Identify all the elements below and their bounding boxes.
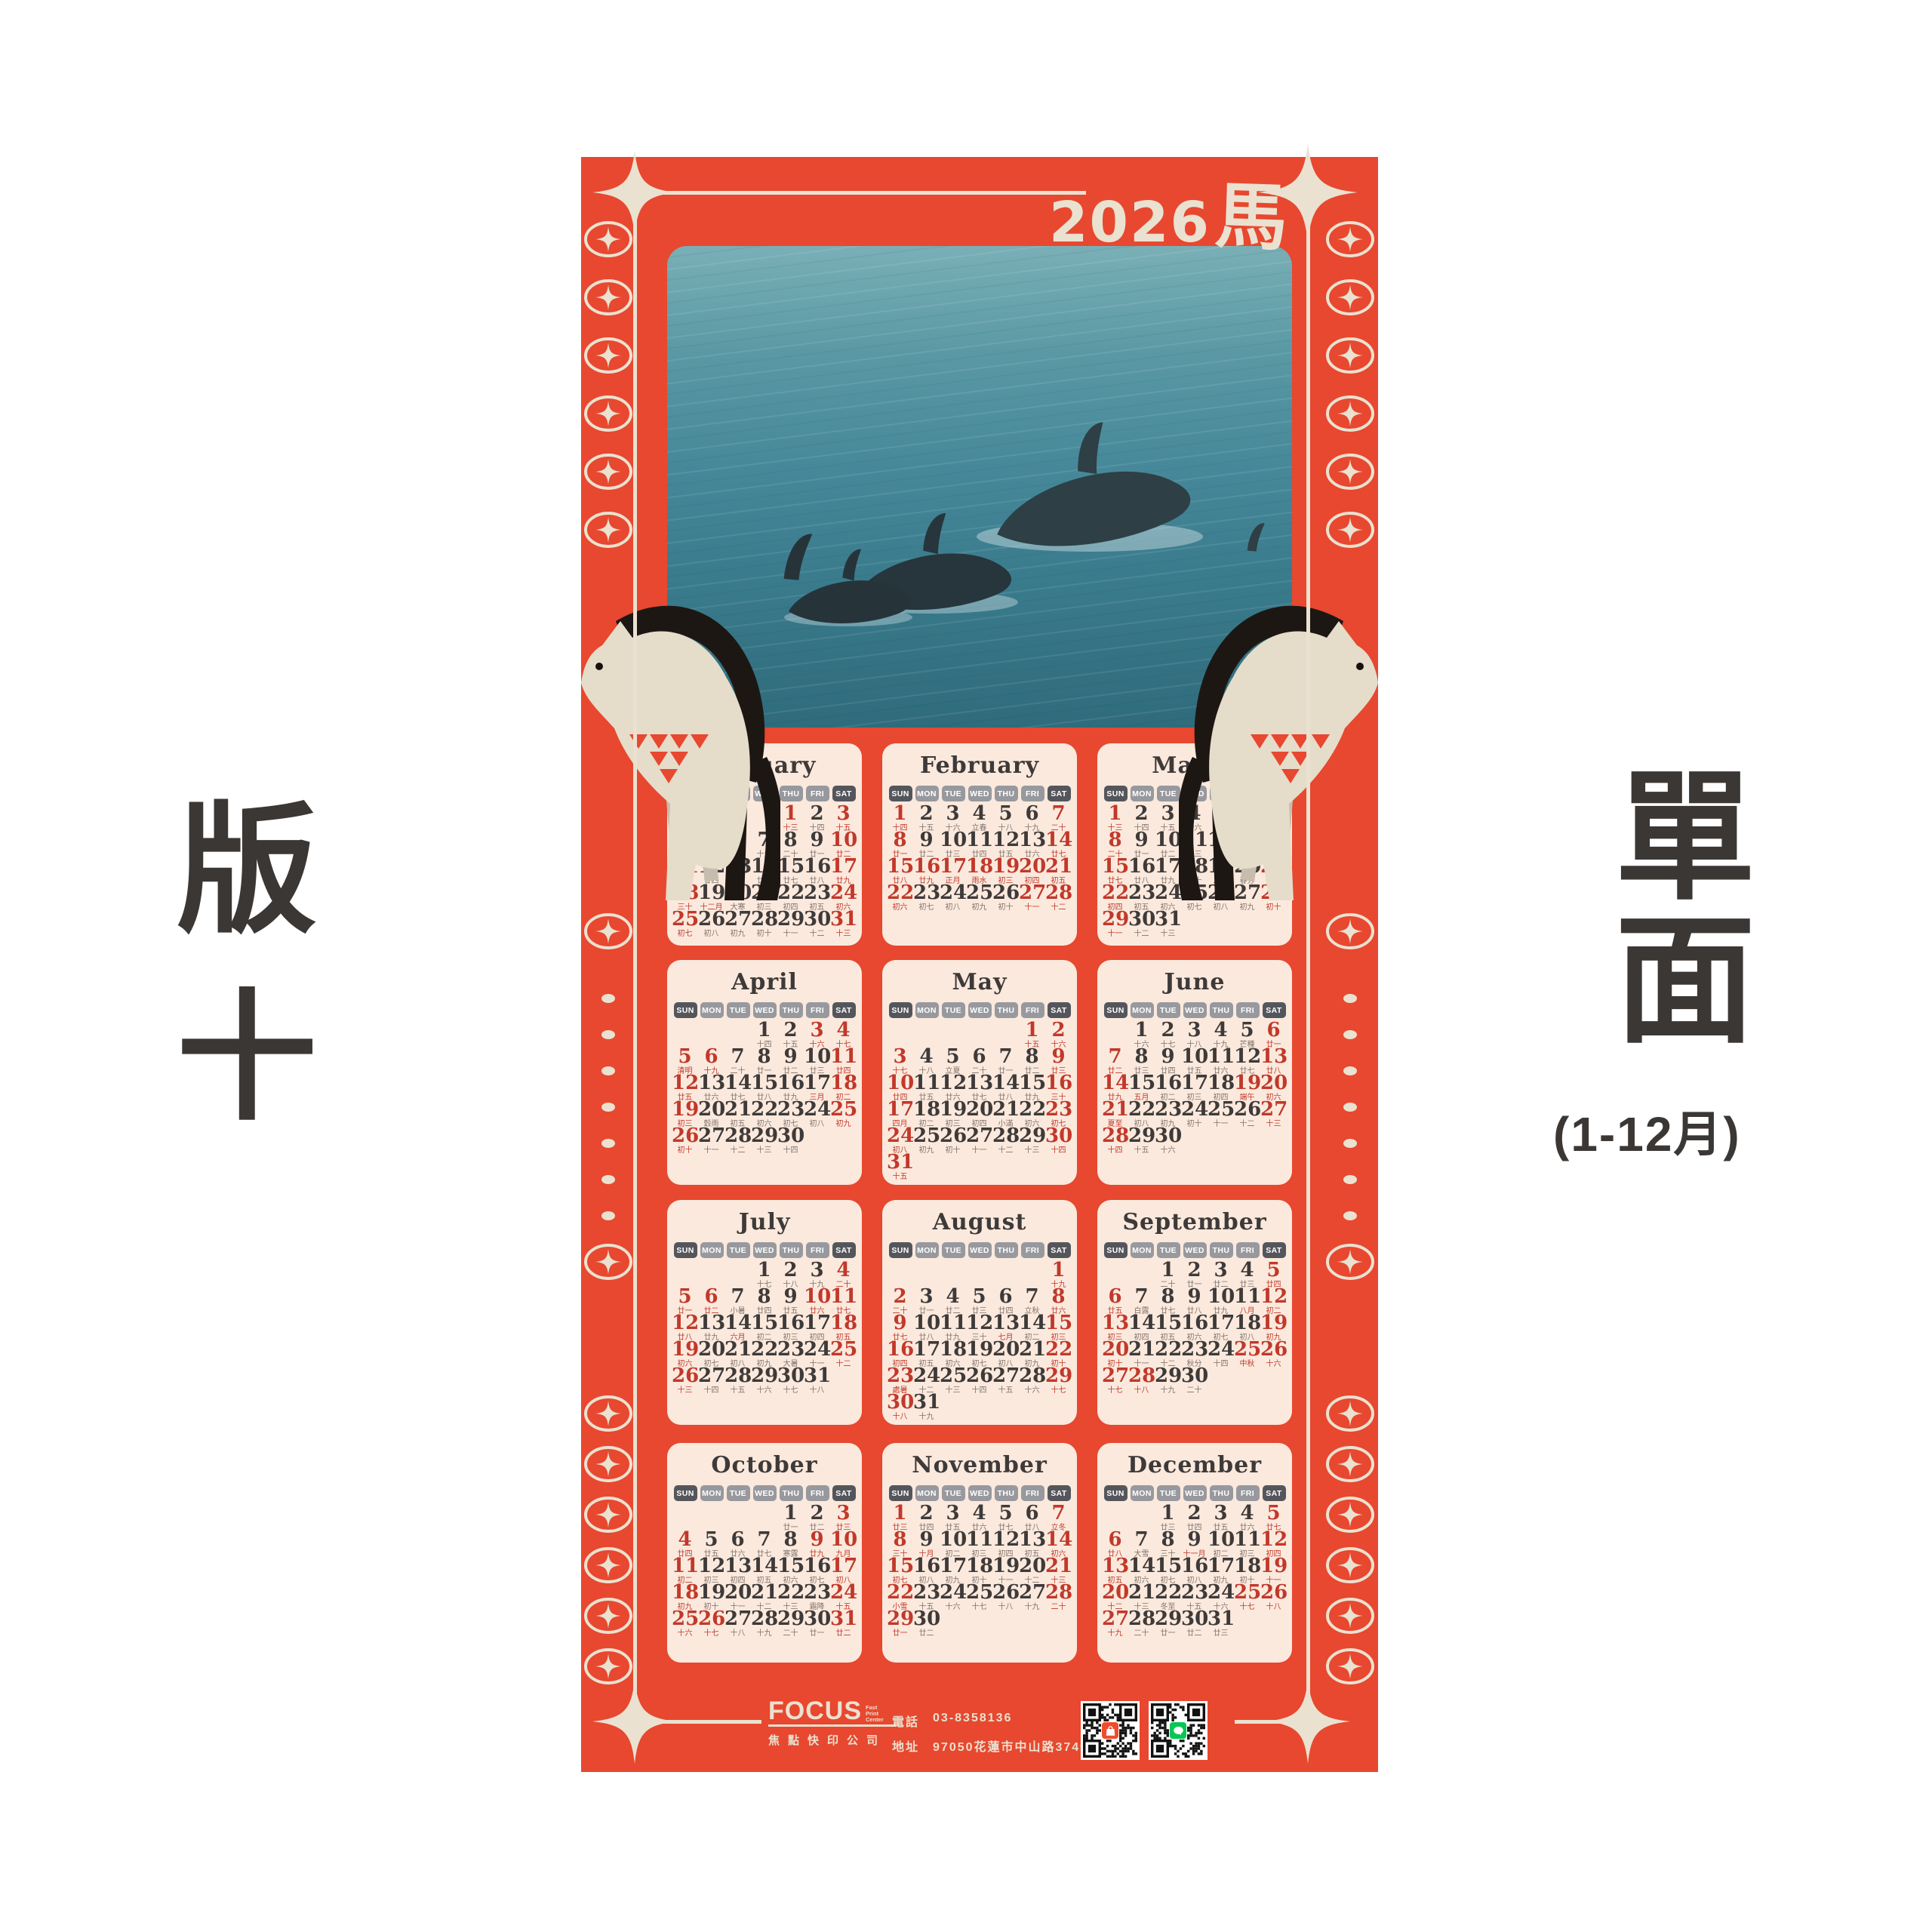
date-number: 7 xyxy=(992,1046,1019,1067)
date-number: 30 xyxy=(913,1608,940,1629)
weekday-chip-tue: TUE xyxy=(727,1002,750,1018)
dates-grid: 1十四2十五3十六4立春5十八6十九7二十8廿一9廿二10廿三11廿四12廿五1… xyxy=(882,803,1077,937)
date-number: 21 xyxy=(992,1099,1019,1120)
coin-medallion-icon xyxy=(1324,452,1376,491)
date-cell: 26十四 xyxy=(966,1365,992,1395)
coin-medallion-icon xyxy=(1324,278,1376,317)
lunar-label: 初八 xyxy=(698,930,724,938)
date-number: 29 xyxy=(751,1125,777,1146)
date-number: 18 xyxy=(830,1312,857,1334)
date-number: 22 xyxy=(887,882,913,903)
date-cell: 31十三 xyxy=(1155,909,1181,938)
date-number: 19 xyxy=(1260,1555,1287,1577)
lunar-label: 十七 xyxy=(1102,1386,1128,1395)
date-number: 26 xyxy=(1234,1099,1260,1120)
weekday-chip-sat: SAT xyxy=(1048,1002,1071,1018)
date-number: 16 xyxy=(1155,1072,1181,1094)
weekday-chip-sun: SUN xyxy=(889,1485,912,1501)
date-number: 12 xyxy=(1260,1286,1287,1307)
date-number: 18 xyxy=(672,1582,698,1603)
date-number: 15 xyxy=(1045,1312,1072,1334)
weekday-chip-sat: SAT xyxy=(1263,1002,1286,1018)
date-number: 7 xyxy=(1045,803,1072,824)
lunar-label: 十五 xyxy=(992,1386,1019,1395)
date-number: 4 xyxy=(966,1503,992,1524)
date-cell: 24十六 xyxy=(940,1582,966,1611)
product-mockup: 版 十 單 面 (1-12月) 2026 馬 xyxy=(0,0,1932,1932)
date-cell: 29十一 xyxy=(777,909,804,938)
date-number: 27 xyxy=(724,1608,751,1629)
date-cell: 30廿一 xyxy=(804,1608,830,1638)
weekday-chip-tue: TUE xyxy=(942,1002,965,1018)
lunar-label: 廿一 xyxy=(887,1629,913,1638)
date-cell: 31十三 xyxy=(830,909,857,938)
date-number: 18 xyxy=(940,1339,966,1360)
date-cell: 27初九 xyxy=(724,909,751,938)
date-cell: 29廿一 xyxy=(1155,1608,1181,1638)
logo-wordmark: FOCUS xyxy=(768,1700,862,1723)
weekday-header-row: SUNMONTUEWEDTHUFRISAT xyxy=(882,1002,1077,1018)
dates-grid: 1二十2廿一3廿二4廿三5廿四6廿五7白露8廿七9廿八10廿九11八月12初二1… xyxy=(1097,1260,1292,1417)
date-cell: 25初九 xyxy=(830,1099,857,1128)
date-number: 7 xyxy=(1102,1046,1128,1067)
date-number: 31 xyxy=(887,1152,913,1173)
date-cell: 26十八 xyxy=(1260,1582,1287,1611)
date-number: 13 xyxy=(698,1312,724,1334)
weekday-chip-wed: WED xyxy=(968,1242,992,1258)
coin-medallion-icon xyxy=(583,1394,634,1433)
lunar-label: 十八 xyxy=(724,1629,751,1638)
date-number: 14 xyxy=(1102,1072,1128,1094)
date-number: 5 xyxy=(966,1286,992,1307)
date-number: 11 xyxy=(1207,1046,1234,1067)
weekday-chip-sat: SAT xyxy=(832,1485,856,1501)
date-cell: 30十七 xyxy=(777,1365,804,1395)
date-number: 14 xyxy=(1045,829,1072,851)
date-number: 26 xyxy=(672,1125,698,1146)
date-number: 6 xyxy=(724,1529,751,1550)
date-number: 14 xyxy=(1045,1529,1072,1550)
date-number: 14 xyxy=(992,1072,1019,1094)
date-number: 17 xyxy=(1181,1072,1207,1094)
date-number: 27 xyxy=(1260,1099,1287,1120)
date-number: 21 xyxy=(751,1582,777,1603)
date-number: 15 xyxy=(1128,1072,1155,1094)
date-number: 2 xyxy=(804,1503,830,1524)
date-cell: 28十八 xyxy=(1128,1365,1155,1395)
date-number: 18 xyxy=(1234,1555,1260,1577)
month-panel-february: FebruarySUNMONTUEWEDTHUFRISAT1十四2十五3十六4立… xyxy=(882,743,1077,946)
date-number: 2 xyxy=(1155,1020,1181,1041)
month-title: September xyxy=(1097,1209,1292,1235)
date-number: 1 xyxy=(751,1020,777,1041)
date-number: 9 xyxy=(1181,1286,1207,1307)
date-number: 17 xyxy=(940,1555,966,1577)
date-number: 3 xyxy=(804,1260,830,1281)
date-cell: 28十四 xyxy=(1102,1125,1128,1155)
lunar-label: 廿三 xyxy=(1207,1629,1234,1638)
border-dot xyxy=(601,994,615,1003)
date-number: 24 xyxy=(887,1125,913,1146)
date-number: 25 xyxy=(1207,1099,1234,1120)
lunar-label: 二十 xyxy=(777,1629,804,1638)
month-title: April xyxy=(667,969,862,995)
date-number: 23 xyxy=(913,1582,940,1603)
lunar-label: 十一 xyxy=(777,930,804,938)
date-number: 28 xyxy=(1128,1608,1155,1629)
date-number: 27 xyxy=(698,1125,724,1146)
lunar-label: 十二 xyxy=(1234,1120,1260,1128)
date-number: 6 xyxy=(698,1046,724,1067)
dolphin-fin-right xyxy=(1247,523,1265,551)
poster-title: 2026 馬 xyxy=(1049,186,1287,251)
weekday-chip-thu: THU xyxy=(995,786,1018,801)
date-number: 1 xyxy=(777,803,804,824)
date-number: 22 xyxy=(887,1582,913,1603)
side-label-right-char-2: 面 xyxy=(1615,912,1755,1052)
coin-medallion-icon xyxy=(1324,1444,1376,1484)
lunar-label: 十七 xyxy=(777,1386,804,1395)
date-number: 16 xyxy=(1181,1312,1207,1334)
lunar-label: 十六 xyxy=(1260,1360,1287,1368)
lunar-label: 十一 xyxy=(1207,1120,1234,1128)
date-number: 20 xyxy=(698,1099,724,1120)
weekday-chip-thu: THU xyxy=(780,786,803,801)
date-number: 20 xyxy=(1102,1582,1128,1603)
date-cell: 27十八 xyxy=(724,1608,751,1638)
date-number: 14 xyxy=(1128,1555,1155,1577)
date-number: 15 xyxy=(777,1555,804,1577)
coin-medallion-icon xyxy=(583,912,634,951)
lunar-label: 初十 xyxy=(1181,1120,1207,1128)
lunar-label: 二十 xyxy=(1045,1603,1072,1611)
date-number: 5 xyxy=(1260,1260,1287,1281)
weekday-chip-wed: WED xyxy=(968,1002,992,1018)
date-number: 19 xyxy=(940,1099,966,1120)
date-number: 27 xyxy=(966,1125,992,1146)
date-number: 22 xyxy=(777,1582,804,1603)
date-cell: 26十八 xyxy=(992,1582,1019,1611)
border-line-top-left xyxy=(633,191,1086,195)
lunar-label: 初十 xyxy=(672,1146,698,1155)
weekday-header-row: SUNMONTUEWEDTHUFRISAT xyxy=(882,786,1077,801)
date-number: 18 xyxy=(1234,1312,1260,1334)
coin-medallion-icon xyxy=(583,394,634,433)
weekday-chip-sun: SUN xyxy=(1104,1002,1128,1018)
date-number: 22 xyxy=(751,1099,777,1120)
lunar-label: 十三 xyxy=(751,1146,777,1155)
date-number: 14 xyxy=(1128,1312,1155,1334)
date-number: 8 xyxy=(887,1529,913,1550)
lunar-label: 十五 xyxy=(887,1173,913,1181)
date-number: 29 xyxy=(1102,909,1128,930)
date-number: 9 xyxy=(804,829,830,851)
date-number: 9 xyxy=(913,1529,940,1550)
date-cell: 27十三 xyxy=(1260,1099,1287,1128)
date-number: 22 xyxy=(751,1339,777,1360)
date-number: 8 xyxy=(887,829,913,851)
date-number: 24 xyxy=(913,1365,940,1386)
weekday-header-row: SUNMONTUEWEDTHUFRISAT xyxy=(882,1485,1077,1501)
date-cell: 28十九 xyxy=(751,1608,777,1638)
date-number: 4 xyxy=(1207,1020,1234,1041)
coin-medallion-icon xyxy=(1324,1495,1376,1534)
lunar-label: 初九 xyxy=(966,903,992,912)
weekday-chip-tue: TUE xyxy=(942,786,965,801)
weekday-chip-tue: TUE xyxy=(942,1485,965,1501)
date-number: 25 xyxy=(966,1582,992,1603)
lunar-label: 中秋 xyxy=(1234,1360,1260,1368)
date-number: 13 xyxy=(698,1072,724,1094)
date-cell: 23初七 xyxy=(913,882,940,912)
date-number: 21 xyxy=(1045,1555,1072,1577)
date-cell: 29十七 xyxy=(1045,1365,1072,1395)
date-cell: 30二十 xyxy=(1181,1365,1207,1395)
date-number: 27 xyxy=(1019,1582,1045,1603)
line-chat-icon xyxy=(1170,1722,1186,1739)
date-number: 19 xyxy=(672,1099,698,1120)
weekday-chip-fri: FRI xyxy=(1021,1242,1044,1258)
date-cell: 31廿三 xyxy=(1207,1608,1234,1638)
date-cell: 29十三 xyxy=(1019,1125,1045,1155)
date-number: 1 xyxy=(887,1503,913,1524)
horse-ornament-left xyxy=(577,577,780,902)
date-number: 28 xyxy=(751,909,777,930)
coin-medallion-icon xyxy=(1324,1394,1376,1433)
date-number: 4 xyxy=(830,1020,857,1041)
lunar-label: 十二 xyxy=(992,1146,1019,1155)
date-number: 19 xyxy=(992,856,1019,877)
date-number: 10 xyxy=(830,1529,857,1550)
date-cell: 29十一 xyxy=(1102,909,1128,938)
date-cell: 27十五 xyxy=(992,1365,1019,1395)
lunar-label: 十三 xyxy=(1260,1120,1287,1128)
dates-grid: 1廿三2廿四3廿五4廿六5廿七6廿八7大雪8三十9十一月10初二11初三12初四… xyxy=(1097,1503,1292,1654)
date-number: 29 xyxy=(1019,1125,1045,1146)
date-number: 12 xyxy=(992,1529,1019,1550)
date-number: 26 xyxy=(992,1582,1019,1603)
weekday-chip-fri: FRI xyxy=(806,1485,829,1501)
date-number: 3 xyxy=(940,1503,966,1524)
coin-medallion-icon xyxy=(583,336,634,375)
date-cell: 25中秋 xyxy=(1234,1339,1260,1368)
date-number: 29 xyxy=(777,909,804,930)
date-number: 5 xyxy=(672,1046,698,1067)
date-number: 4 xyxy=(913,1046,940,1067)
date-number: 23 xyxy=(777,1099,804,1120)
date-number: 12 xyxy=(966,1312,992,1334)
date-number: 31 xyxy=(830,1608,857,1629)
date-number: 30 xyxy=(887,1392,913,1413)
weekday-chip-mon: MON xyxy=(1131,1485,1154,1501)
date-number: 11 xyxy=(1234,1286,1260,1307)
month-title: December xyxy=(1097,1452,1292,1478)
date-number: 17 xyxy=(830,1555,857,1577)
date-number: 22 xyxy=(777,882,804,903)
date-number: 16 xyxy=(913,856,940,877)
company-name: 焦點快印公司 xyxy=(768,1732,897,1748)
lunar-label: 十六 xyxy=(1155,1146,1181,1155)
weekday-chip-sun: SUN xyxy=(1104,1485,1128,1501)
date-number: 20 xyxy=(1019,856,1045,877)
date-number: 15 xyxy=(887,856,913,877)
date-number: 1 xyxy=(1155,1503,1181,1524)
date-cell: 25十三 xyxy=(940,1365,966,1395)
border-dot xyxy=(1343,994,1357,1003)
weekday-chip-mon: MON xyxy=(915,1485,939,1501)
weekday-chip-sun: SUN xyxy=(1104,1242,1128,1258)
date-number: 24 xyxy=(1207,1339,1234,1360)
date-number: 19 xyxy=(992,1555,1019,1577)
date-number: 29 xyxy=(1155,1608,1181,1629)
date-number: 10 xyxy=(940,1529,966,1550)
date-number: 15 xyxy=(887,1555,913,1577)
lunar-label: 二十 xyxy=(1181,1386,1207,1395)
date-number: 17 xyxy=(1207,1555,1234,1577)
date-number: 2 xyxy=(913,1503,940,1524)
shopee-qr-code xyxy=(1081,1701,1140,1760)
date-number: 2 xyxy=(777,1020,804,1041)
date-number: 15 xyxy=(1019,1072,1045,1094)
date-number: 9 xyxy=(1155,1046,1181,1067)
poster-zodiac: 馬 xyxy=(1214,184,1289,252)
phone-label: 電話 xyxy=(892,1712,919,1730)
date-number: 2 xyxy=(777,1260,804,1281)
date-number: 7 xyxy=(751,1529,777,1550)
month-panel-june: JuneSUNMONTUEWEDTHUFRISAT1十六2十七3十八4十九5芒種… xyxy=(1097,960,1292,1185)
weekday-chip-thu: THU xyxy=(995,1002,1018,1018)
date-number: 19 xyxy=(698,1582,724,1603)
border-dot xyxy=(1343,1211,1357,1220)
date-number: 6 xyxy=(1102,1286,1128,1307)
date-number: 2 xyxy=(1045,1020,1072,1041)
date-number: 26 xyxy=(1260,1582,1287,1603)
date-number: 9 xyxy=(913,829,940,851)
coin-medallion-icon xyxy=(1324,510,1376,549)
lunar-label: 初八 xyxy=(804,1120,830,1128)
lunar-label: 廿二 xyxy=(1181,1629,1207,1638)
date-number: 4 xyxy=(966,803,992,824)
date-number: 2 xyxy=(1128,803,1155,824)
date-number: 7 xyxy=(1128,1529,1155,1550)
date-number: 17 xyxy=(940,856,966,877)
date-number: 17 xyxy=(804,1072,830,1094)
date-number: 23 xyxy=(804,1582,830,1603)
date-number: 8 xyxy=(777,829,804,851)
lunar-label: 十一 xyxy=(1102,930,1128,938)
date-number: 7 xyxy=(724,1046,751,1067)
lunar-label: 十三 xyxy=(1019,1146,1045,1155)
weekday-chip-thu: THU xyxy=(1210,1002,1233,1018)
date-number: 20 xyxy=(724,1582,751,1603)
date-cell: 26十七 xyxy=(698,1608,724,1638)
weekday-chip-fri: FRI xyxy=(806,786,829,801)
dates-grid: 1十五2十六3十七4十八5立夏6二十7廿一8廿二9廿三10廿四11廿五12廿六1… xyxy=(882,1020,1077,1177)
border-dot xyxy=(601,1175,615,1184)
date-cell: 28十二 xyxy=(724,1125,751,1155)
date-cell: 25十七 xyxy=(1234,1582,1260,1611)
lunar-label: 十四 xyxy=(1102,1146,1128,1155)
shopee-bag-icon xyxy=(1102,1722,1118,1739)
date-number: 14 xyxy=(724,1312,751,1334)
date-number: 17 xyxy=(1207,1312,1234,1334)
border-dot xyxy=(601,1211,615,1220)
date-cell: 29十九 xyxy=(1155,1365,1181,1395)
date-number: 9 xyxy=(1045,1046,1072,1067)
date-number: 3 xyxy=(804,1020,830,1041)
weekday-chip-tue: TUE xyxy=(942,1242,965,1258)
date-number: 16 xyxy=(804,1555,830,1577)
lunar-label: 初七 xyxy=(672,930,698,938)
date-number: 20 xyxy=(1019,1555,1045,1577)
lunar-label: 初九 xyxy=(830,1120,857,1128)
weekday-chip-wed: WED xyxy=(968,1485,992,1501)
weekday-chip-fri: FRI xyxy=(1236,1242,1260,1258)
date-number: 20 xyxy=(966,1099,992,1120)
date-number: 26 xyxy=(1260,1339,1287,1360)
lunar-label: 十三 xyxy=(672,1386,698,1395)
weekday-chip-fri: FRI xyxy=(1236,1485,1260,1501)
date-number: 30 xyxy=(1181,1608,1207,1629)
date-number: 25 xyxy=(1234,1339,1260,1360)
lunar-label: 十四 xyxy=(1045,1146,1072,1155)
date-number: 21 xyxy=(1128,1582,1155,1603)
date-number: 13 xyxy=(966,1072,992,1094)
date-number: 12 xyxy=(1260,1529,1287,1550)
date-number: 24 xyxy=(830,1582,857,1603)
lunar-label: 十八 xyxy=(1128,1386,1155,1395)
date-number: 24 xyxy=(830,882,857,903)
side-label-left-char-2: 十 xyxy=(177,989,317,1129)
dates-grid: 1廿三2廿四3廿五4廿六5廿七6廿八7立冬8三十9十月10初二11初三12初四1… xyxy=(882,1503,1077,1654)
date-number: 24 xyxy=(940,882,966,903)
weekday-chip-wed: WED xyxy=(968,786,992,801)
date-number: 21 xyxy=(1128,1339,1155,1360)
lunar-label: 十七 xyxy=(1045,1386,1072,1395)
date-number: 28 xyxy=(1045,1582,1072,1603)
date-number: 10 xyxy=(913,1312,940,1334)
month-title: November xyxy=(882,1452,1077,1478)
date-number: 1 xyxy=(751,1260,777,1281)
weekday-chip-thu: THU xyxy=(995,1485,1018,1501)
weekday-chip-sun: SUN xyxy=(889,1242,912,1258)
date-number: 5 xyxy=(672,1286,698,1307)
border-dot xyxy=(1343,1030,1357,1039)
weekday-chip-tue: TUE xyxy=(1157,1485,1180,1501)
border-dot xyxy=(1343,1175,1357,1184)
date-number: 5 xyxy=(992,803,1019,824)
date-cell: 30十八 xyxy=(887,1392,913,1421)
date-number: 31 xyxy=(804,1365,830,1386)
date-number: 23 xyxy=(887,1365,913,1386)
date-number: 20 xyxy=(1260,1072,1287,1094)
date-number: 9 xyxy=(887,1312,913,1334)
date-number: 28 xyxy=(724,1365,751,1386)
date-number: 23 xyxy=(1181,1339,1207,1360)
weekday-chip-sat: SAT xyxy=(1263,1485,1286,1501)
weekday-chip-sun: SUN xyxy=(674,1242,697,1258)
date-number: 1 xyxy=(777,1503,804,1524)
horse-ornament-right xyxy=(1179,577,1383,902)
phone-number: 03-8358136 xyxy=(933,1712,1012,1730)
date-cell: 31十五 xyxy=(887,1152,913,1181)
date-number: 24 xyxy=(1155,882,1181,903)
dates-grid: 1十六2十七3十八4十九5芒種6廿一7廿二8廿三9廿四10廿五11廿六12廿七1… xyxy=(1097,1020,1292,1177)
date-number: 16 xyxy=(1045,1072,1072,1094)
date-number: 28 xyxy=(1019,1365,1045,1386)
date-cell: 25十六 xyxy=(672,1608,698,1638)
month-panel-august: AugustSUNMONTUEWEDTHUFRISAT1十九2二十3廿一4廿二5… xyxy=(882,1200,1077,1425)
